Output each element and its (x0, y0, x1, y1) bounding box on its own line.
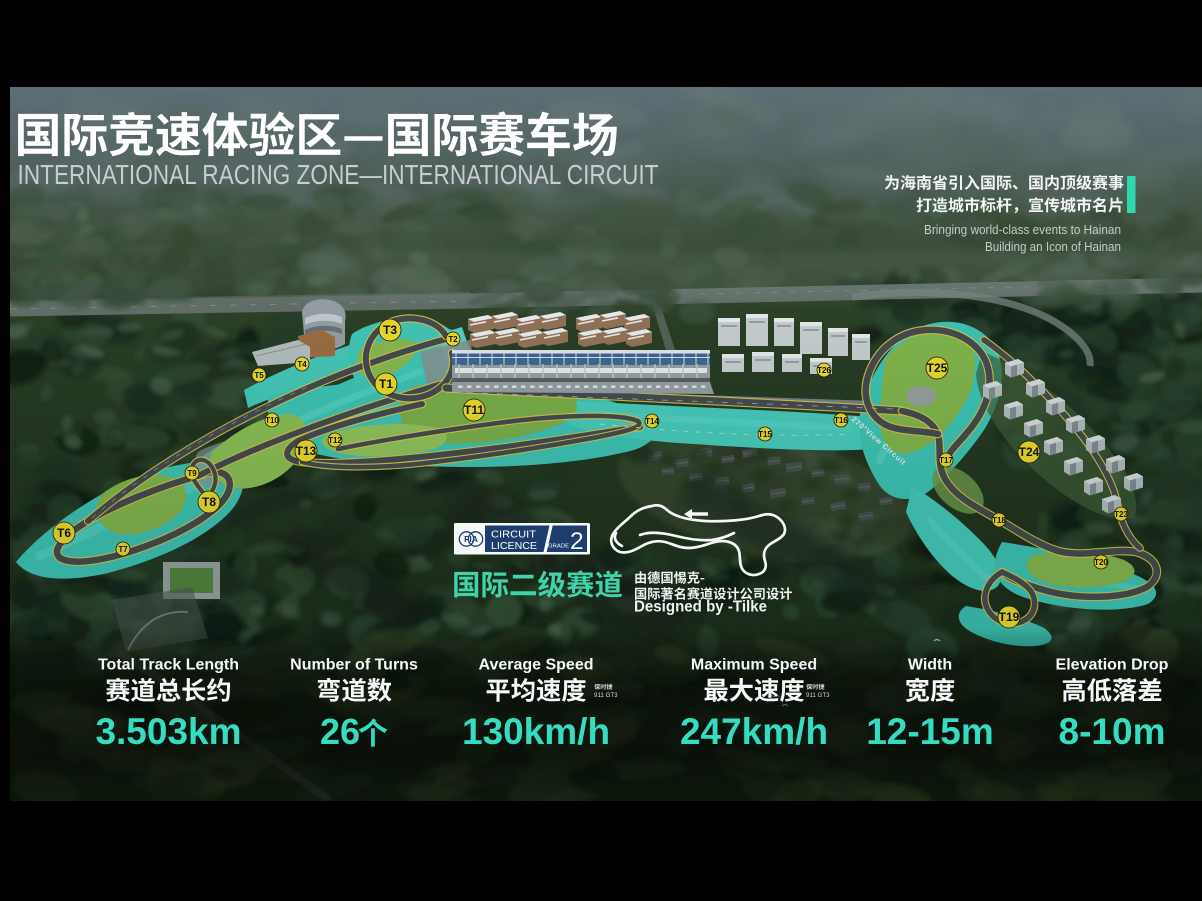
svg-text:911 GT3: 911 GT3 (806, 692, 830, 699)
svg-text:Designed by -Tilke: Designed by -Tilke (634, 599, 767, 616)
svg-text:8-10m: 8-10m (1059, 711, 1166, 752)
svg-text:12-15m: 12-15m (866, 711, 994, 752)
svg-text:GRADE: GRADE (548, 544, 569, 550)
svg-text:Elevation Drop: Elevation Drop (1056, 657, 1169, 674)
svg-text:130km/h: 130km/h (462, 711, 610, 752)
svg-text:911 GT3: 911 GT3 (594, 692, 618, 699)
svg-text:Bringing world-class events to: Bringing world-class events to Hainan (924, 222, 1121, 237)
svg-text:247km/h: 247km/h (680, 711, 828, 752)
svg-text:Width: Width (908, 657, 952, 674)
svg-text:Total Track Length: Total Track Length (98, 657, 239, 674)
svg-text:2: 2 (570, 528, 584, 555)
svg-text:LICENCE: LICENCE (491, 540, 537, 552)
svg-text:FIA: FIA (464, 534, 478, 544)
svg-text:3.503km: 3.503km (95, 711, 241, 752)
svg-text:Building an Icon of Hainan: Building an Icon of Hainan (985, 239, 1121, 254)
svg-text:CIRCUIT: CIRCUIT (491, 529, 537, 541)
svg-text:Number of Turns: Number of Turns (290, 657, 418, 674)
svg-text:Maximum Speed: Maximum Speed (691, 657, 817, 674)
svg-text:INTERNATIONAL RACING ZONE—INTE: INTERNATIONAL RACING ZONE—INTERNATIONAL … (18, 159, 659, 190)
svg-text:Average Speed: Average Speed (478, 657, 593, 674)
svg-text:26: 26 (320, 711, 360, 752)
